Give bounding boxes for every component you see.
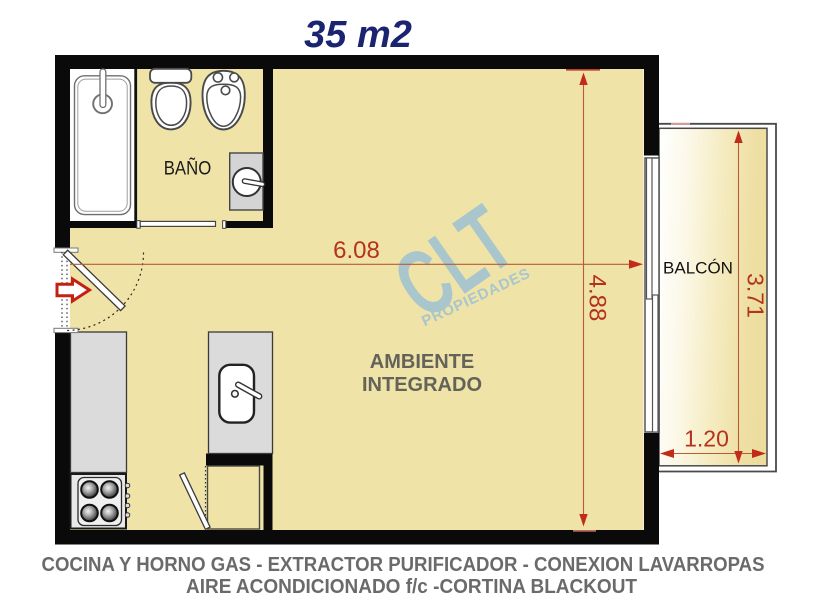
svg-text:1.20: 1.20 <box>684 426 729 452</box>
svg-text:3.71: 3.71 <box>743 273 769 318</box>
svg-text:BALCÓN: BALCÓN <box>663 259 733 278</box>
svg-text:AIRE ACONDICIONADO f/c -CORTIN: AIRE ACONDICIONADO f/c -CORTINA BLACKOUT <box>186 576 637 598</box>
svg-text:4.88: 4.88 <box>584 275 611 322</box>
svg-text:INTEGRADO: INTEGRADO <box>362 374 482 396</box>
svg-text:COCINA Y HORNO GAS - EXTRACTOR: COCINA Y HORNO GAS - EXTRACTOR PURIFICAD… <box>42 554 765 576</box>
svg-text:BAÑO: BAÑO <box>164 158 212 180</box>
svg-text:35 m2: 35 m2 <box>304 14 412 56</box>
svg-text:6.08: 6.08 <box>333 237 380 264</box>
svg-text:AMBIENTE: AMBIENTE <box>370 351 474 373</box>
